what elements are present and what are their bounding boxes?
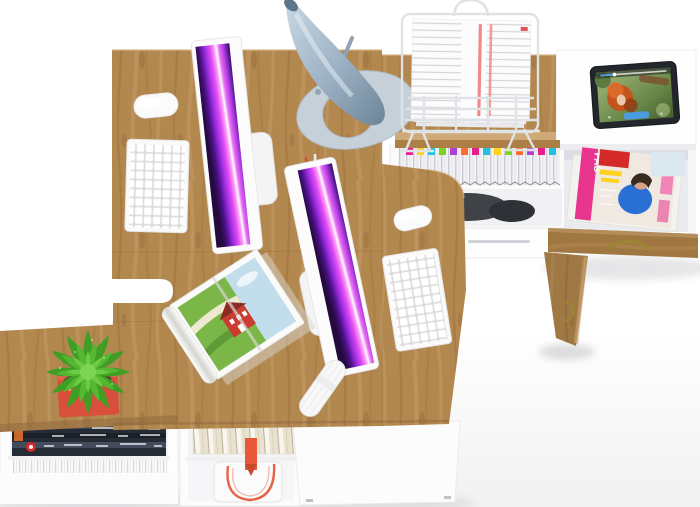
magazine-pile: FAS [567,141,688,232]
file-tab [483,147,490,155]
middle-shelf-board [186,457,296,461]
second-magazine-corner [651,152,685,176]
paper-pile [12,460,168,473]
desk-wing-lip [395,140,560,148]
left-shelf-front [0,474,178,504]
file-tab [549,147,556,155]
magazine-red-block [598,149,630,168]
file-tab [439,147,446,155]
file-tab [461,147,468,155]
side-table-right-panel [688,150,696,236]
file-tab [494,147,501,155]
cabinet-foot [444,496,451,499]
left-shelf-unit [0,418,178,504]
keyboard-1 [125,139,189,233]
middle-shelf-unit [180,418,300,506]
side-table-front-edge [556,144,696,150]
deskB-cabinet [293,421,460,505]
keyboard-1-keys [129,144,185,228]
file-tab [450,147,457,155]
file-tab [472,147,479,155]
tablet [590,61,680,129]
left-shelf-board [8,456,170,460]
cabinet-foot [306,499,313,502]
plant-center [80,364,96,380]
lamp-screw [315,89,321,95]
deskB-cabinet-front [293,421,460,505]
workspace-render: FAS [0,0,700,507]
file-tab [538,147,545,155]
cabinet-drawer-handle [468,240,530,243]
